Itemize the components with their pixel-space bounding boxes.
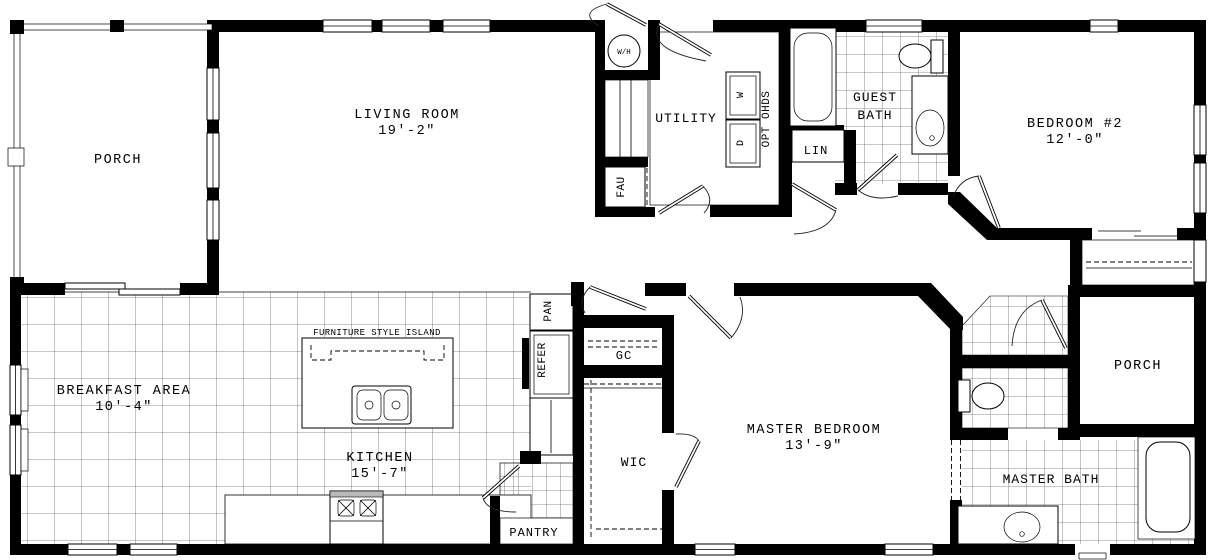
floor-plan: PORCH LIVING ROOM 19'-2" UTILITY GUEST B… (0, 0, 1215, 560)
master-tub (1138, 437, 1195, 539)
master-vanity (958, 506, 1058, 544)
lin-label: LIN (804, 144, 829, 158)
opt-ohds-label: OPT OHDS (761, 91, 773, 148)
porch-post (8, 148, 24, 166)
master-bedroom-dim: 13'-9" (785, 439, 843, 454)
guest-bath-label-2: BATH (857, 108, 892, 123)
porch-post (10, 277, 24, 291)
porch-left-label: PORCH (94, 153, 142, 168)
floor-plan-drawing: PORCH LIVING ROOM 19'-2" UTILITY GUEST B… (0, 0, 1215, 560)
hall-kitchen-door (582, 287, 646, 313)
guest-bath-label-1: GUEST (853, 90, 897, 105)
utility-label: UTILITY (655, 111, 717, 126)
sliding-door-panel (119, 289, 180, 295)
breakfast-label: BREAKFAST AREA (57, 384, 191, 399)
dryer-label: D (736, 140, 747, 146)
master-bath-label: MASTER BATH (1003, 472, 1100, 487)
pan-label: PAN (543, 300, 555, 321)
kitchen-dim: 15'-7" (351, 467, 409, 482)
utility-entry-door (657, 24, 711, 61)
fau-label: FAU (616, 176, 628, 197)
bedroom2-dim: 12'-0" (1046, 133, 1104, 148)
island-label: FURNITURE STYLE ISLAND (313, 328, 441, 338)
refrigerator-door-front (522, 338, 529, 389)
sliding-door-panel (65, 283, 125, 289)
master-bedroom-door (689, 296, 743, 338)
lin-door (792, 184, 836, 234)
porch-right-label: PORCH (1114, 359, 1162, 374)
vestibule-tile (962, 296, 1068, 355)
linen-shelves (605, 80, 648, 157)
gc-shelving (588, 341, 658, 347)
range-backsplash (330, 491, 383, 497)
window-sill (21, 429, 28, 471)
door-threshold (1079, 553, 1106, 559)
living-room-dim: 19'-2" (378, 124, 436, 139)
wic-door (676, 434, 699, 487)
pantry-label: PANTRY (509, 526, 558, 540)
refer-label: REFER (537, 342, 549, 378)
bedroom2-closet (1082, 240, 1194, 285)
master-bedroom-label: MASTER BEDROOM (747, 423, 881, 438)
breakfast-dim: 10'-4" (95, 400, 153, 415)
wic-label: WIC (621, 455, 647, 470)
bedroom2-label: BEDROOM #2 (1027, 117, 1123, 132)
kitchen-island (302, 338, 453, 428)
window-icon (1194, 240, 1206, 282)
master-toilet (958, 380, 1004, 412)
guest-vanity (912, 76, 948, 154)
porch-post (110, 20, 124, 32)
gc-label: GC (616, 349, 632, 363)
utility-hall-door (659, 186, 710, 213)
base-cabinet (530, 398, 573, 455)
island-sink (352, 386, 411, 424)
water-heater-label: W/H (617, 49, 631, 57)
guest-tub (790, 28, 836, 126)
kitchen-label: KITCHEN (346, 451, 413, 466)
window-sill (21, 369, 28, 411)
range (330, 491, 383, 544)
living-room-label: LIVING ROOM (354, 108, 460, 123)
porch-post (10, 20, 24, 34)
washer-label: W (736, 92, 747, 98)
